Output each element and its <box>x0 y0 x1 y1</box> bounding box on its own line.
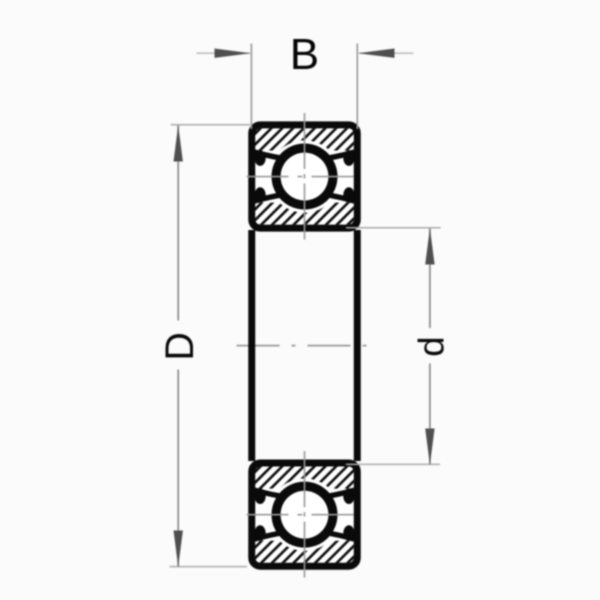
svg-text:D: D <box>158 332 202 361</box>
svg-text:d: d <box>411 336 452 356</box>
svg-text:B: B <box>290 30 319 79</box>
